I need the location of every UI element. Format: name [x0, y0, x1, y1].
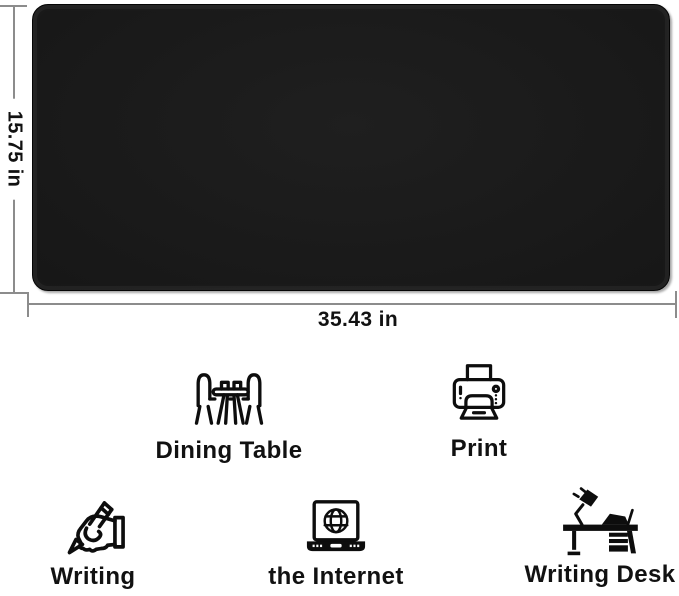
feature-label-writing: Writing: [50, 563, 135, 591]
feature-print: Print: [399, 358, 559, 463]
feature-writing-desk: Writing Desk: [521, 490, 679, 589]
product-infographic: 15.75 in 35.43 in: [0, 0, 679, 596]
writing-desk-icon: [555, 490, 645, 558]
dining-table-icon: [187, 360, 271, 434]
feature-the-internet: the Internet: [256, 492, 416, 591]
feature-writing: Writing: [13, 492, 173, 591]
height-dimension-tick-bottom: [0, 292, 28, 294]
desk-mat: [32, 4, 670, 291]
width-dimension-tick-right: [675, 291, 677, 318]
feature-label-print: Print: [451, 435, 508, 463]
width-dimension-label: 35.43 in: [318, 308, 398, 332]
feature-label-the-internet: the Internet: [268, 563, 403, 591]
laptop-internet-icon: [297, 492, 375, 560]
height-dimension-label: 15.75 in: [3, 99, 26, 200]
feature-dining-table: Dining Table: [149, 360, 309, 465]
width-dimension-line: [27, 303, 677, 305]
width-dimension-tick-left: [27, 292, 29, 317]
height-dimension-tick-top: [0, 5, 27, 7]
feature-label-writing-desk: Writing Desk: [524, 561, 675, 589]
printer-icon: [442, 358, 516, 432]
feature-label-dining-table: Dining Table: [155, 437, 302, 465]
writing-hand-icon: [54, 492, 132, 560]
